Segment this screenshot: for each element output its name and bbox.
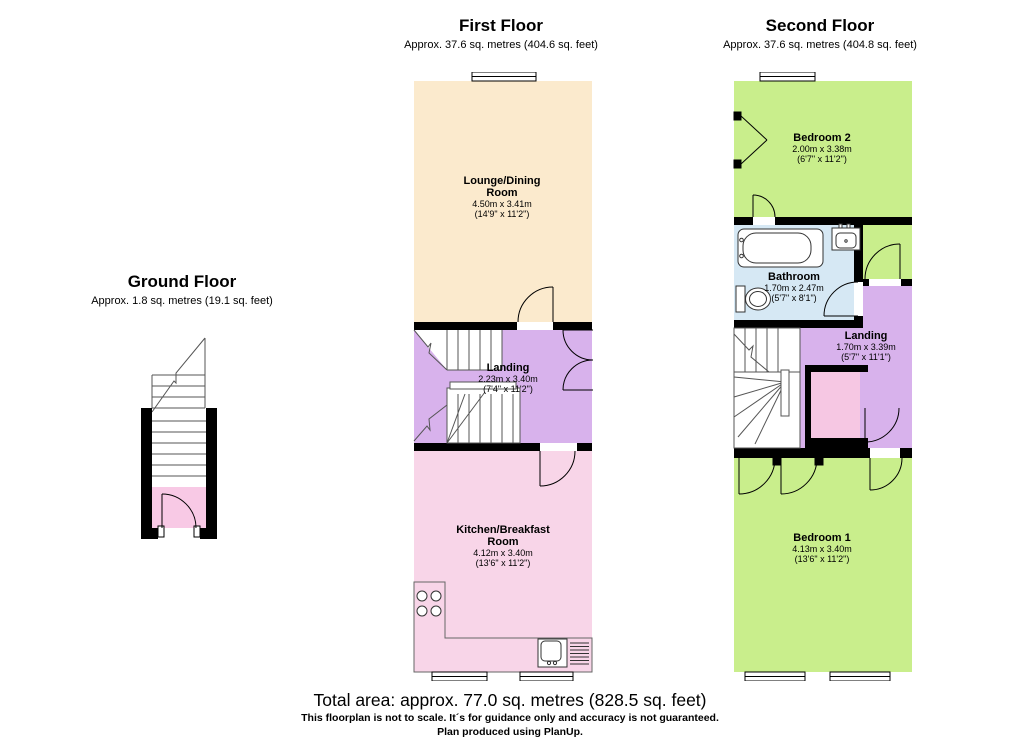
room-dims-metric: 4.50m x 3.41m bbox=[459, 199, 545, 209]
room-dims-metric: 4.13m x 3.40m bbox=[767, 544, 877, 554]
cupboard-wall-top bbox=[805, 365, 868, 372]
room-label-bathroom: Bathroom 1.70m x 2.47m (5'7" x 8'1") bbox=[739, 271, 849, 303]
bedroom1-door-gap bbox=[870, 448, 900, 458]
room-dims-metric: 2.23m x 3.40m bbox=[453, 374, 563, 384]
wall-left bbox=[141, 408, 152, 539]
ground-floor-title: Ground Floor bbox=[91, 272, 273, 292]
bedroom1-room-area bbox=[734, 458, 912, 672]
bath-tub bbox=[738, 229, 823, 267]
second-floor-subtitle: Approx. 37.6 sq. metres (404.8 sq. feet) bbox=[723, 38, 917, 52]
room-dims-imperial: (7'4" x 11'2") bbox=[453, 384, 563, 394]
room-dims-metric: 1.70m x 2.47m bbox=[739, 283, 849, 293]
room-label-landing-second: Landing 1.70m x 3.39m (5'7" x 11'1") bbox=[811, 330, 921, 362]
bathroom-sink bbox=[832, 224, 860, 250]
room-name: Kitchen/Breakfast Room bbox=[449, 524, 557, 548]
room-label-landing-first: Landing 2.23m x 3.40m (7'4" x 11'2") bbox=[453, 362, 563, 394]
kitchen-window bbox=[520, 672, 573, 681]
wall-lounge-landing bbox=[414, 322, 592, 330]
room-label-bedroom2: Bedroom 2 2.00m x 3.38m (6'7" x 11'2") bbox=[767, 132, 877, 164]
ground-staircase-upper bbox=[152, 338, 205, 412]
first-floor-title: First Floor bbox=[404, 16, 598, 36]
landing-strip-area bbox=[863, 282, 912, 448]
bedroom1-window bbox=[830, 672, 890, 681]
landing-double-door-gap bbox=[592, 330, 601, 390]
stair-handrail bbox=[781, 370, 789, 416]
ground-floor-plan-svg bbox=[141, 333, 217, 539]
first-floor-subtitle: Approx. 37.6 sq. metres (404.6 sq. feet) bbox=[404, 38, 598, 52]
bedroom2-corridor-area bbox=[863, 225, 912, 282]
room-dims-metric: 2.00m x 3.38m bbox=[767, 144, 877, 154]
cupboard-area bbox=[810, 372, 860, 438]
room-dims-imperial: (13'6" x 11'2") bbox=[767, 554, 877, 564]
room-label-kitchen: Kitchen/Breakfast Room 4.12m x 3.40m (13… bbox=[449, 524, 557, 568]
floorplan-canvas: Ground Floor Approx. 1.8 sq. metres (19.… bbox=[0, 0, 1024, 745]
lounge-window bbox=[472, 72, 536, 81]
total-area-text: Total area: approx. 77.0 sq. metres (828… bbox=[314, 690, 707, 711]
ground-floor-title-block: Ground Floor Approx. 1.8 sq. metres (19.… bbox=[91, 272, 273, 308]
room-dims-imperial: (14'9" x 11'2") bbox=[459, 209, 545, 219]
bedroom1-window bbox=[745, 672, 805, 681]
lounge-door-gap bbox=[517, 322, 553, 330]
disclaimer-text: This floorplan is not to scale. It´s for… bbox=[301, 712, 719, 724]
kitchen-window bbox=[432, 672, 487, 681]
kitchen-door-gap bbox=[540, 443, 577, 451]
room-name: Bedroom 2 bbox=[767, 132, 877, 144]
room-dims-imperial: (6'7" x 11'2") bbox=[767, 154, 877, 164]
door-jamb bbox=[194, 526, 200, 537]
bathroom-door-gap bbox=[854, 282, 863, 316]
room-name: Bathroom bbox=[739, 271, 849, 283]
room-name: Lounge/Dining Room bbox=[459, 175, 545, 199]
second-floor-title: Second Floor bbox=[723, 16, 917, 36]
winder-staircase bbox=[734, 328, 800, 448]
wall-right bbox=[206, 408, 217, 539]
credit-text: Plan produced using PlanUp. bbox=[437, 726, 583, 738]
room-label-bedroom1: Bedroom 1 4.13m x 3.40m (13'6" x 11'2") bbox=[767, 532, 877, 564]
room-label-lounge: Lounge/Dining Room 4.50m x 3.41m (14'9" … bbox=[459, 175, 545, 219]
entrance-hall-floor bbox=[152, 487, 206, 528]
room-name: Landing bbox=[453, 362, 563, 374]
ground-staircase-lower bbox=[152, 421, 206, 476]
room-dims-metric: 4.12m x 3.40m bbox=[449, 548, 557, 558]
room-dims-metric: 1.70m x 3.39m bbox=[811, 342, 921, 352]
cupboard-wall-left bbox=[805, 365, 811, 438]
room-name: Landing bbox=[811, 330, 921, 342]
wall-bathroom-bottom bbox=[734, 320, 863, 328]
bedroom2-bathroom-door-gap bbox=[753, 217, 775, 225]
room-dims-imperial: (13'6" x 11'2") bbox=[449, 558, 557, 568]
bedroom2-door-gap bbox=[869, 279, 901, 286]
ground-floor-subtitle: Approx. 1.8 sq. metres (19.1 sq. feet) bbox=[91, 294, 273, 308]
cupboard-wall-bottom bbox=[805, 438, 868, 448]
room-dims-imperial: (5'7" x 8'1") bbox=[739, 293, 849, 303]
second-floor-title-block: Second Floor Approx. 37.6 sq. metres (40… bbox=[723, 16, 917, 52]
bedroom2-window bbox=[760, 72, 815, 81]
room-name: Bedroom 1 bbox=[767, 532, 877, 544]
door-jamb bbox=[158, 526, 164, 537]
first-floor-title-block: First Floor Approx. 37.6 sq. metres (404… bbox=[404, 16, 598, 52]
room-dims-imperial: (5'7" x 11'1") bbox=[811, 352, 921, 362]
